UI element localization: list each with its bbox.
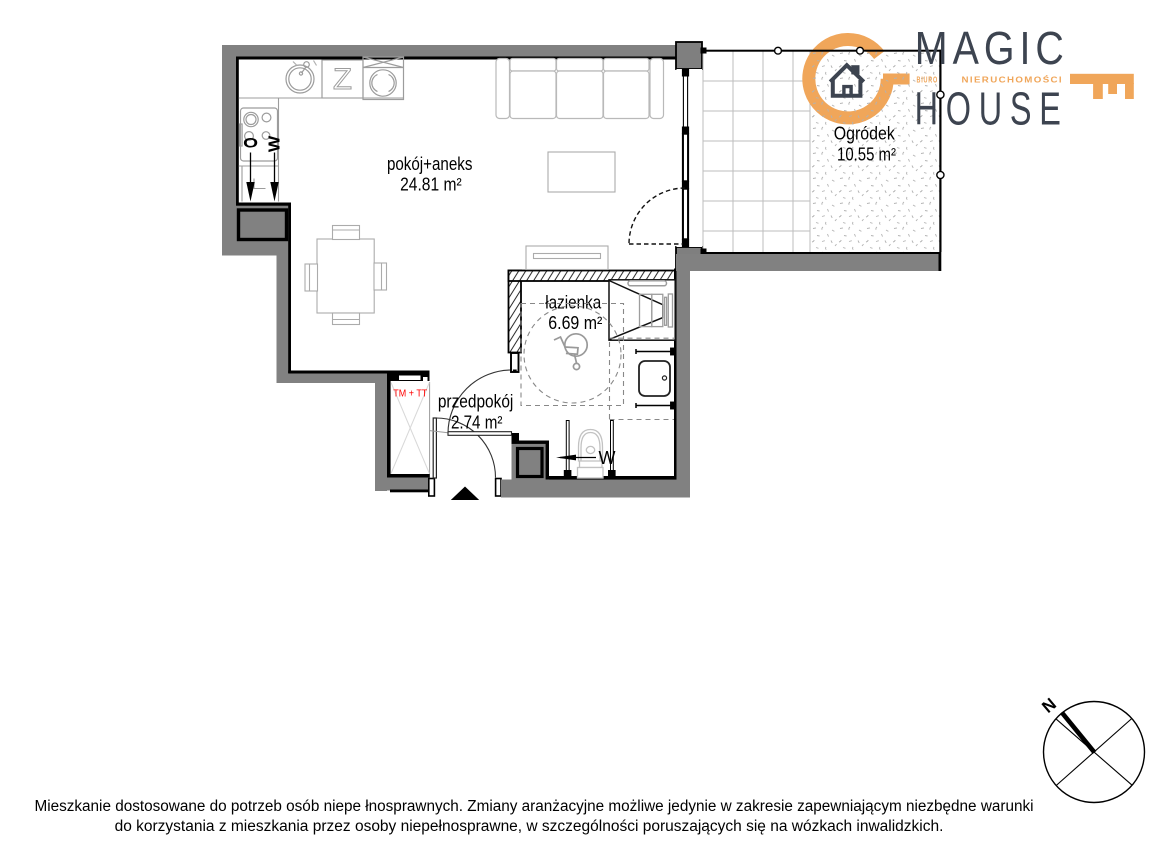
svg-text:Ogródek: Ogródek	[834, 124, 896, 144]
svg-text:O: O	[243, 135, 258, 151]
svg-text:MAGIC: MAGIC	[915, 22, 1069, 74]
svg-text:10.55 m²: 10.55 m²	[837, 144, 896, 164]
svg-text:24.81 m²: 24.81 m²	[400, 174, 462, 194]
svg-text:W: W	[266, 135, 283, 152]
svg-text:6.69 m²: 6.69 m²	[548, 313, 602, 333]
svg-text:przedpokój: przedpokój	[438, 392, 514, 412]
svg-text:HOUSE: HOUSE	[915, 82, 1069, 134]
svg-text:Mieszkanie dostosowane do potr: Mieszkanie dostosowane do potrzeb osób n…	[34, 798, 1033, 815]
svg-text:2.74 m²: 2.74 m²	[451, 413, 503, 433]
svg-text:Z: Z	[333, 63, 352, 96]
svg-text:do korzystania z mieszkania pr: do korzystania z mieszkania przez osoby …	[115, 818, 944, 835]
svg-text:pokój+aneks: pokój+aneks	[387, 154, 473, 174]
svg-text:W: W	[599, 448, 616, 468]
svg-text:BIURO: BIURO	[917, 75, 939, 85]
svg-text:NIERUCHOMOŚCI: NIERUCHOMOŚCI	[962, 74, 1064, 85]
svg-text:TM + TT: TM + TT	[393, 388, 427, 399]
